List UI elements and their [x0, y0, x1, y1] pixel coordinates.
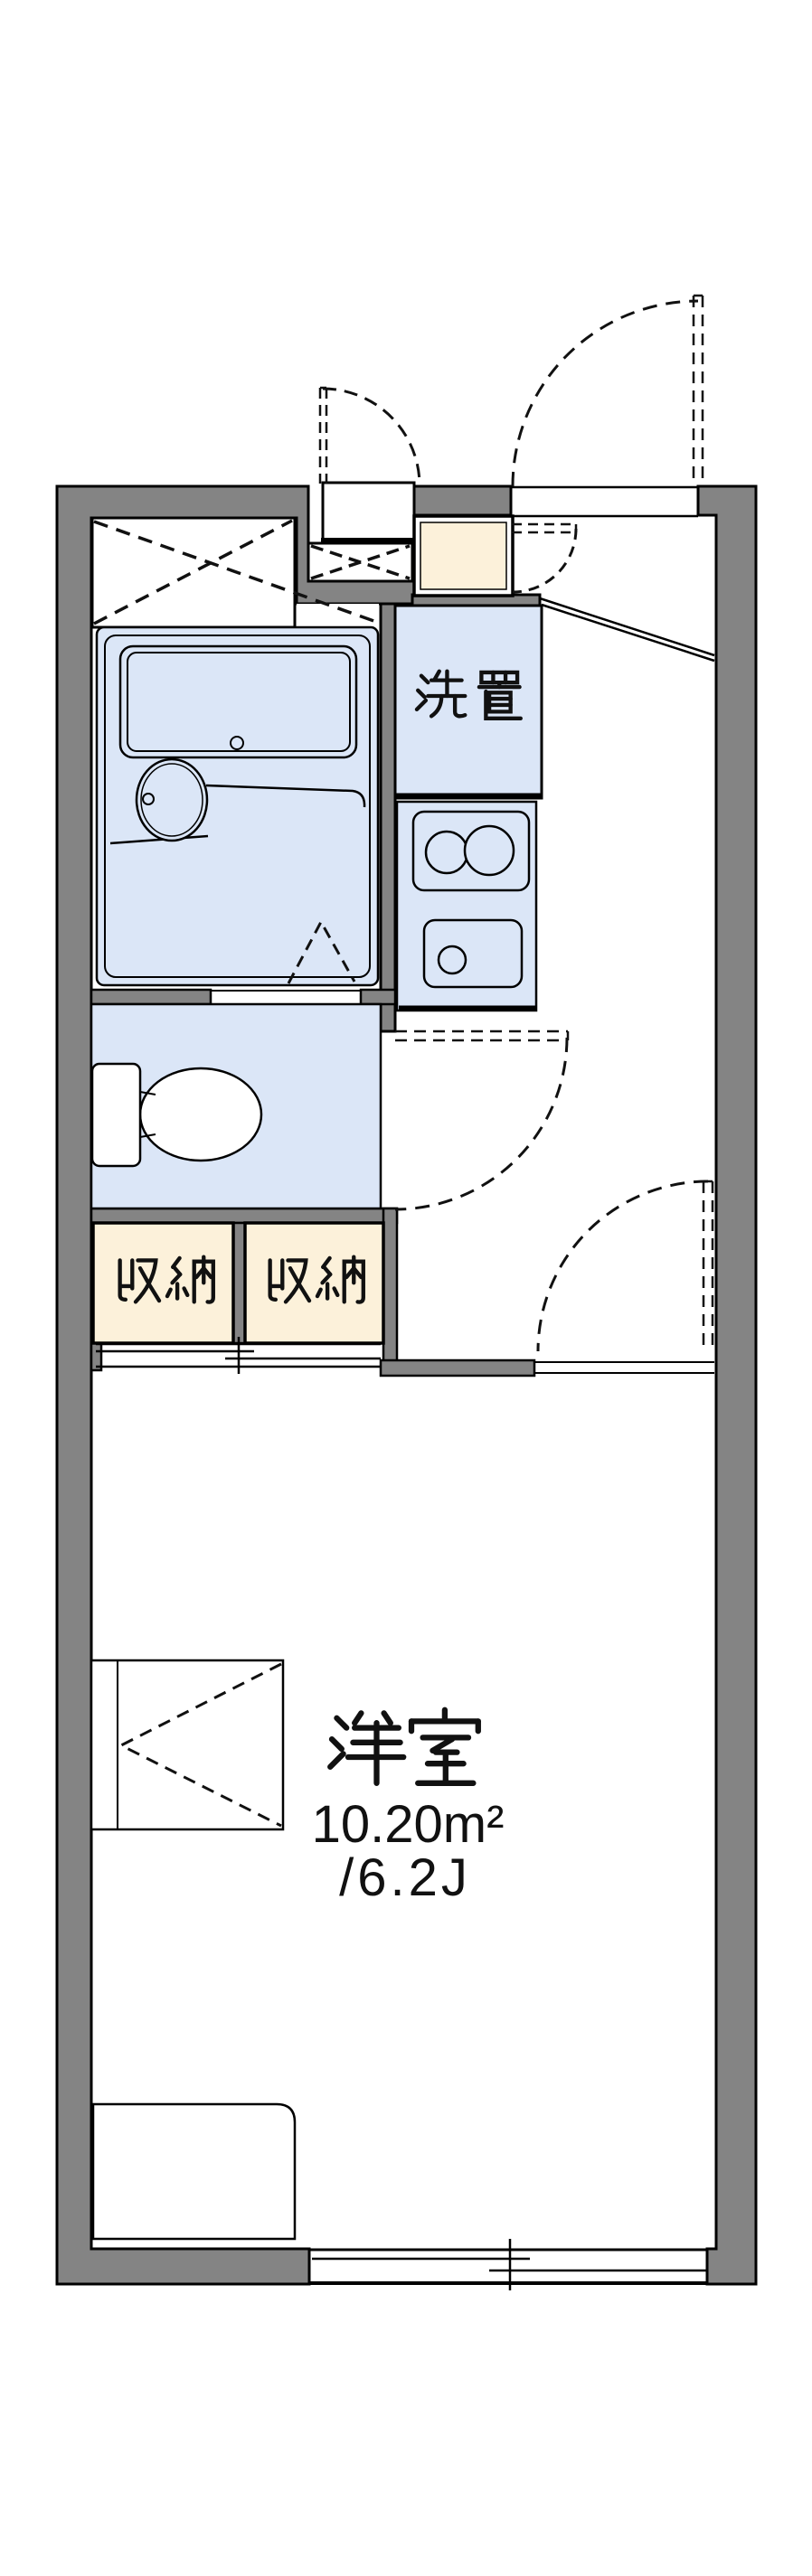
svg-text:10.20m²: 10.20m² [312, 1795, 505, 1854]
svg-text:/6.2J: /6.2J [339, 1848, 471, 1907]
